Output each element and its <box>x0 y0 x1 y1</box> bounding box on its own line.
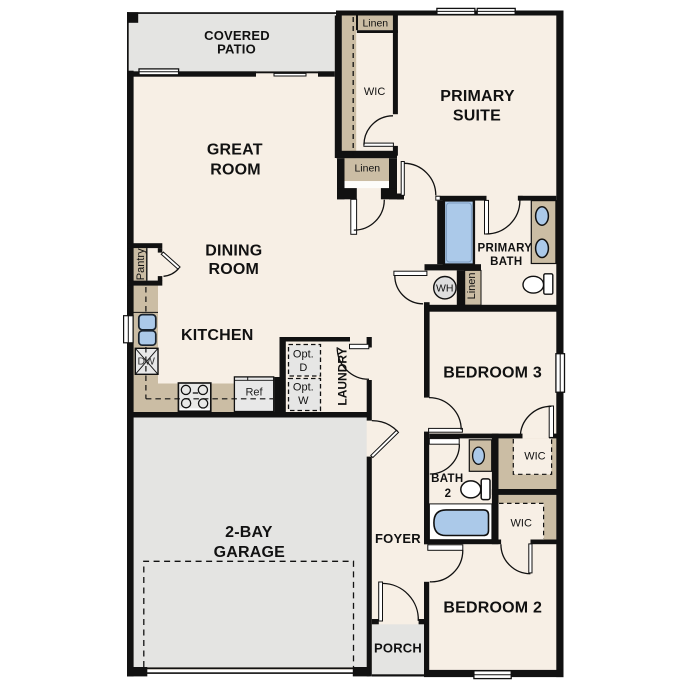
svg-text:ROOM: ROOM <box>209 261 260 278</box>
svg-text:BEDROOM 2: BEDROOM 2 <box>443 599 542 616</box>
svg-text:SUITE: SUITE <box>453 108 501 125</box>
svg-text:2-BAY: 2-BAY <box>225 524 273 541</box>
svg-text:PATIO: PATIO <box>217 42 256 57</box>
svg-text:BATH: BATH <box>431 473 463 485</box>
svg-text:Pantry: Pantry <box>135 248 147 280</box>
svg-text:PRIMARY: PRIMARY <box>440 88 515 105</box>
svg-text:PRIMARY: PRIMARY <box>478 242 533 254</box>
svg-text:Linen: Linen <box>362 18 388 30</box>
svg-text:WIC: WIC <box>511 518 532 530</box>
svg-text:BATH: BATH <box>490 256 522 268</box>
svg-text:Ref: Ref <box>245 386 263 398</box>
svg-text:PORCH: PORCH <box>374 640 422 655</box>
svg-text:W: W <box>298 395 309 407</box>
svg-text:Linen: Linen <box>466 272 478 299</box>
svg-text:GARAGE: GARAGE <box>214 544 286 561</box>
svg-text:FOYER: FOYER <box>375 531 421 546</box>
svg-text:WIC: WIC <box>364 86 385 98</box>
svg-text:WH: WH <box>436 282 454 294</box>
svg-text:BEDROOM 3: BEDROOM 3 <box>443 365 542 382</box>
svg-text:2: 2 <box>445 488 452 500</box>
svg-text:GREAT: GREAT <box>207 142 263 159</box>
svg-text:DW: DW <box>137 356 155 368</box>
svg-text:Linen: Linen <box>354 163 380 175</box>
svg-text:LAUNDRY: LAUNDRY <box>336 347 350 405</box>
svg-text:Opt.: Opt. <box>293 382 314 394</box>
svg-text:D: D <box>299 362 307 374</box>
svg-text:Opt.: Opt. <box>293 349 314 361</box>
svg-text:WIC: WIC <box>524 450 545 462</box>
svg-text:ROOM: ROOM <box>210 161 261 178</box>
svg-text:KITCHEN: KITCHEN <box>181 327 254 344</box>
svg-text:DINING: DINING <box>205 242 262 259</box>
